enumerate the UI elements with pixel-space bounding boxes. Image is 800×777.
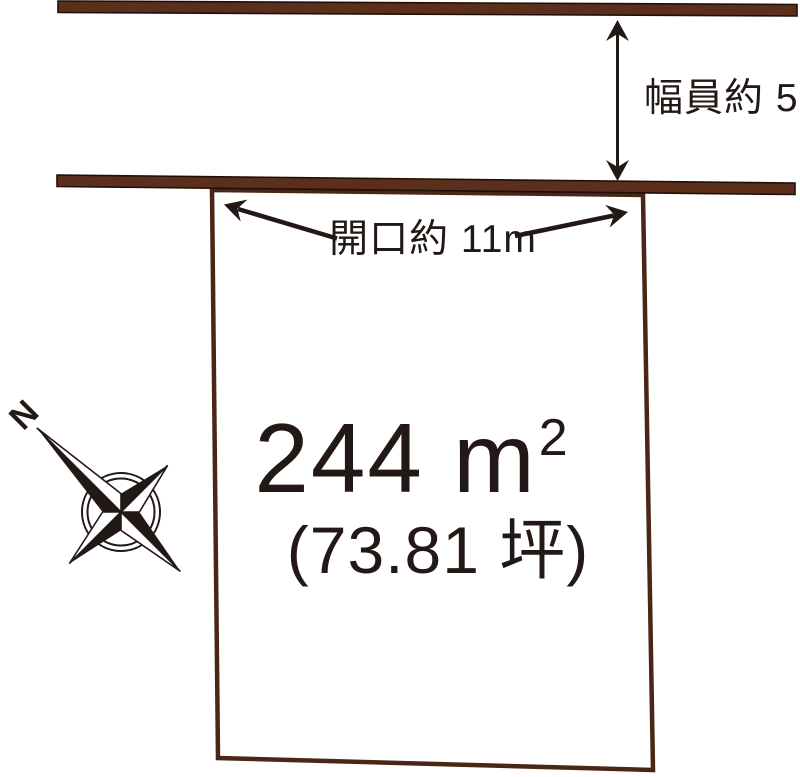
area-exponent: 2 <box>539 409 570 467</box>
compass-rose-icon: N <box>0 355 227 623</box>
compass-north-dark <box>28 428 121 521</box>
frontage-label: 開口約 11m <box>329 218 537 261</box>
compass-north-light <box>37 419 130 512</box>
road-width-arrow <box>606 20 629 181</box>
diagram-canvas: 幅員約 5m 開口約 11m 244 m2 (73.81 坪) <box>0 0 800 777</box>
road-upper-line <box>58 1 797 16</box>
area-value: 244 m <box>254 403 536 513</box>
road-width-label: 幅員約 5m <box>644 77 800 120</box>
area-tsubo-label: (73.81 坪) <box>287 513 589 587</box>
area-label: 244 m2 <box>254 403 569 513</box>
land-plot-diagram: 幅員約 5m 開口約 11m 244 m2 (73.81 坪) <box>0 0 800 777</box>
